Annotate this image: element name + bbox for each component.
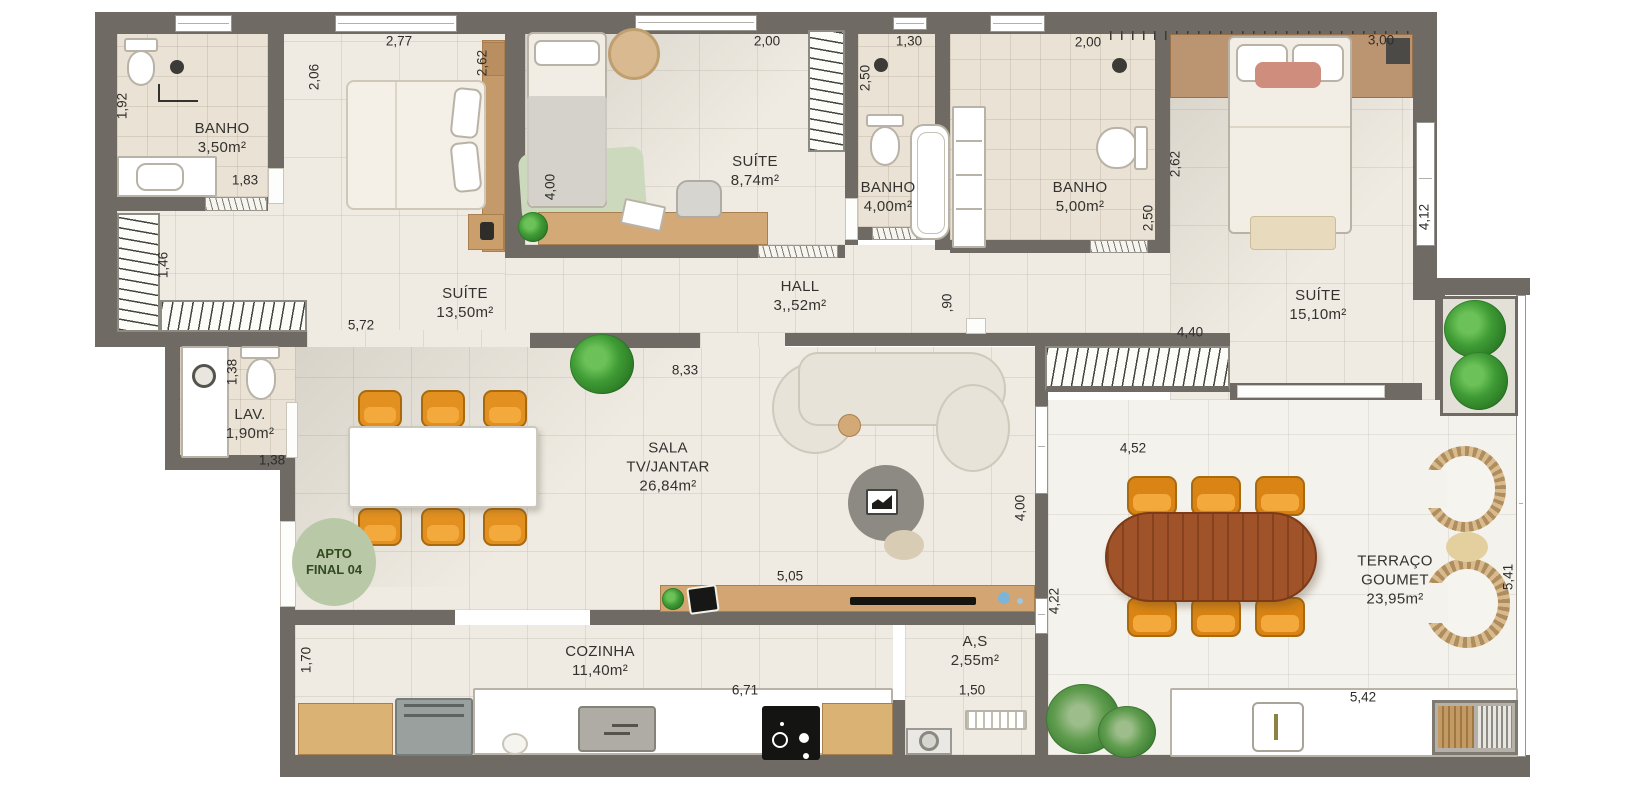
- window-banho3: [990, 15, 1045, 32]
- floor-plan: APTO FINAL 04 BANHO 3,50m² SUÍTE 13,50m²…: [0, 0, 1640, 800]
- washer-door: [919, 731, 939, 751]
- dim-label: 5,72: [348, 318, 374, 333]
- room-label-terraco: TERRAÇO GOUMET 23,95m²: [1357, 552, 1432, 609]
- wall-banho3-suite3-divider: [1155, 12, 1170, 253]
- shower-head-icon: [1112, 58, 1127, 73]
- dim-label: 4,00: [543, 174, 558, 200]
- hanging-chair: [608, 28, 660, 80]
- wall-left: [95, 12, 117, 347]
- toilet-bowl: [870, 126, 900, 166]
- room-label-banho-suite1: BANHO 3,50m²: [195, 119, 250, 157]
- floor-passage: [307, 330, 530, 348]
- terrace-chair: [1255, 597, 1305, 637]
- blanket-fold: [395, 82, 397, 208]
- bath-cabinet: [952, 106, 986, 248]
- dim-label: 1,83: [232, 173, 258, 188]
- shower-head-icon: [874, 58, 888, 72]
- lav-sink: [192, 364, 216, 388]
- desk-chair: [676, 180, 722, 218]
- room-label-banho-suite2: BANHO 4,00m²: [861, 178, 916, 216]
- dim-label: 2,50: [858, 65, 873, 91]
- bathtub-inner: [917, 132, 945, 234]
- door-banho-suite2: [845, 198, 858, 240]
- pillow: [449, 141, 482, 194]
- doorframe-hall: [966, 318, 986, 334]
- dining-chair: [483, 508, 527, 546]
- cooktop: [762, 706, 820, 760]
- dim-label: 2,62: [1168, 151, 1183, 177]
- dim-label: 2,50: [1141, 205, 1156, 231]
- wall-sala-cozinha-west: [295, 610, 455, 625]
- indoor-tree: [570, 334, 634, 394]
- kitchen-corner-cabinet: [822, 703, 893, 755]
- room-label-banho-suite3: BANHO 5,00m²: [1053, 178, 1108, 216]
- terrace-chair: [1255, 476, 1305, 516]
- room-label-suite3: SUÍTE 15,10m²: [1289, 286, 1346, 324]
- bowl: [502, 733, 528, 755]
- wall-cozinha-as-divider: [893, 700, 905, 755]
- lamp-icon: [480, 222, 494, 240]
- dim-label: 2,00: [1075, 35, 1101, 50]
- dim-label: 4,22: [1047, 588, 1062, 614]
- wall-sala-west: [280, 470, 295, 760]
- dining-table: [348, 426, 538, 508]
- terrace-chair: [1127, 476, 1177, 516]
- closet-suite3: [1045, 346, 1230, 392]
- pouf: [1446, 532, 1488, 562]
- closet-suite1-south: [160, 300, 307, 332]
- wicker-lounge-chair: [1424, 446, 1506, 532]
- terrace-chair: [1191, 476, 1241, 516]
- console-plant: [662, 588, 684, 610]
- dim-label: 2,62: [475, 50, 490, 76]
- pillow: [534, 40, 600, 66]
- toilet-bowl: [1096, 127, 1138, 169]
- grill-slats-steel: [1478, 706, 1512, 748]
- toilet: [1134, 126, 1148, 170]
- wall-bottom: [280, 755, 1530, 777]
- terrace-sink: [1252, 702, 1304, 752]
- dim-label: 8,33: [672, 363, 698, 378]
- pillow: [449, 87, 482, 140]
- window-banho1: [175, 15, 232, 32]
- wall-hall-sala-east: [785, 333, 1230, 346]
- lav-counter: [181, 346, 229, 458]
- floor-hall: [505, 245, 1170, 333]
- terrace-chair: [1191, 597, 1241, 637]
- shower-head-icon: [170, 60, 184, 74]
- room-label-suite1: SUÍTE 13,50m²: [436, 284, 493, 322]
- dim-label: 4,12: [1417, 204, 1432, 230]
- terrace-chair: [1127, 597, 1177, 637]
- window-suite1: [335, 15, 457, 32]
- dim-label: 5,41: [1501, 564, 1516, 590]
- dim-label: 5,42: [1350, 690, 1376, 705]
- dim-label: 1,38: [225, 359, 240, 385]
- desk-plant: [518, 212, 548, 242]
- terrace-plant-large: [1098, 706, 1156, 758]
- dim-label: 1,70: [299, 647, 314, 673]
- cabinet-shelves: [956, 140, 982, 142]
- terrace-faucet-icon: [1274, 714, 1278, 740]
- dim-label: 1,46: [156, 252, 171, 278]
- dim-label: 1,30: [896, 34, 922, 49]
- shower-partition: [158, 100, 198, 102]
- room-label-area-servico: A,S 2,55m²: [951, 632, 1000, 670]
- tv-flat: [850, 597, 976, 605]
- side-table: [838, 414, 861, 437]
- dim-label: 5,05: [777, 569, 803, 584]
- dim-label: ,90: [940, 294, 955, 313]
- room-label-cozinha: COZINHA 11,40m²: [565, 642, 635, 680]
- dim-label: 1,92: [115, 93, 130, 119]
- floor-opening-hall-sala: [700, 333, 785, 348]
- laundry-tank: [965, 710, 1027, 730]
- faucet-icon: [612, 724, 638, 727]
- door-banho-suite1: [268, 168, 284, 204]
- blanket-fold: [1230, 126, 1350, 128]
- closet-suite1-west: [117, 213, 160, 332]
- cushion-rose: [1255, 62, 1321, 88]
- planter-shrub: [1444, 300, 1506, 358]
- room-label-sala: SALA TV/JANTAR 26,84m²: [626, 439, 709, 496]
- sink-basin: [136, 163, 184, 191]
- sliding-door-suite3-terraco: [1237, 385, 1385, 398]
- dining-chair: [421, 390, 465, 428]
- badge-line1: APTO: [316, 546, 352, 562]
- doorsill-banho1: [205, 197, 267, 211]
- dim-label: 4,00: [1013, 495, 1028, 521]
- wall-sala-cozinha-east: [590, 610, 1035, 625]
- kitchen-sink: [578, 706, 656, 752]
- kitchen-cabinet-wood: [298, 703, 393, 755]
- dining-chair: [358, 390, 402, 428]
- wall-lav-west: [165, 345, 180, 460]
- dim-label: 2,06: [307, 64, 322, 90]
- wall-corridor-south: [95, 332, 307, 347]
- dim-label: 2,77: [386, 34, 412, 49]
- dining-chair: [483, 390, 527, 428]
- apartment-badge: APTO FINAL 04: [292, 518, 376, 606]
- dim-label: 1,38: [259, 453, 285, 468]
- dining-chair: [421, 508, 465, 546]
- dim-label: 3,00: [1368, 33, 1394, 48]
- fridge-handle: [404, 704, 464, 707]
- dim-label: 4,52: [1120, 441, 1146, 456]
- badge-line2: FINAL 04: [306, 562, 362, 578]
- bed-bench: [1250, 216, 1336, 250]
- doorsill-banho3: [1090, 240, 1148, 253]
- dim-label: 1,50: [959, 683, 985, 698]
- cooktop-burner: [772, 732, 788, 748]
- speaker-icon: [686, 584, 719, 615]
- blanket-gray: [527, 96, 607, 206]
- grill-slats-wood: [1438, 706, 1474, 748]
- planter-shrub: [1450, 352, 1508, 410]
- wall-banho1-suite1-divider: [268, 12, 284, 170]
- window-banho2: [893, 17, 927, 30]
- room-label-lavabo: LAV. 1,90m²: [226, 405, 275, 443]
- room-label-suite2: SUÍTE 8,74m²: [731, 152, 780, 190]
- door-lavabo: [286, 402, 298, 458]
- wardrobe-suite2: [808, 30, 845, 152]
- wicker-lounge-chair: [1424, 558, 1510, 648]
- dim-label: 4,40: [1177, 325, 1203, 340]
- pouf: [884, 530, 924, 560]
- window-suite2: [635, 15, 757, 31]
- wall-terraco-northeast: [1422, 278, 1530, 295]
- room-label-hall: HALL 3,,52m²: [774, 277, 827, 315]
- sofa-chaise: [936, 384, 1010, 472]
- dim-label: 6,71: [732, 683, 758, 698]
- glass-door-sala-terraco: [1035, 406, 1048, 494]
- toilet-bowl: [127, 50, 155, 86]
- doorsill-suite2: [758, 245, 838, 258]
- decor-blue: [998, 592, 1010, 604]
- dim-label: 2,00: [754, 34, 780, 49]
- toilet-bowl: [246, 358, 276, 400]
- terrace-table: [1105, 512, 1317, 602]
